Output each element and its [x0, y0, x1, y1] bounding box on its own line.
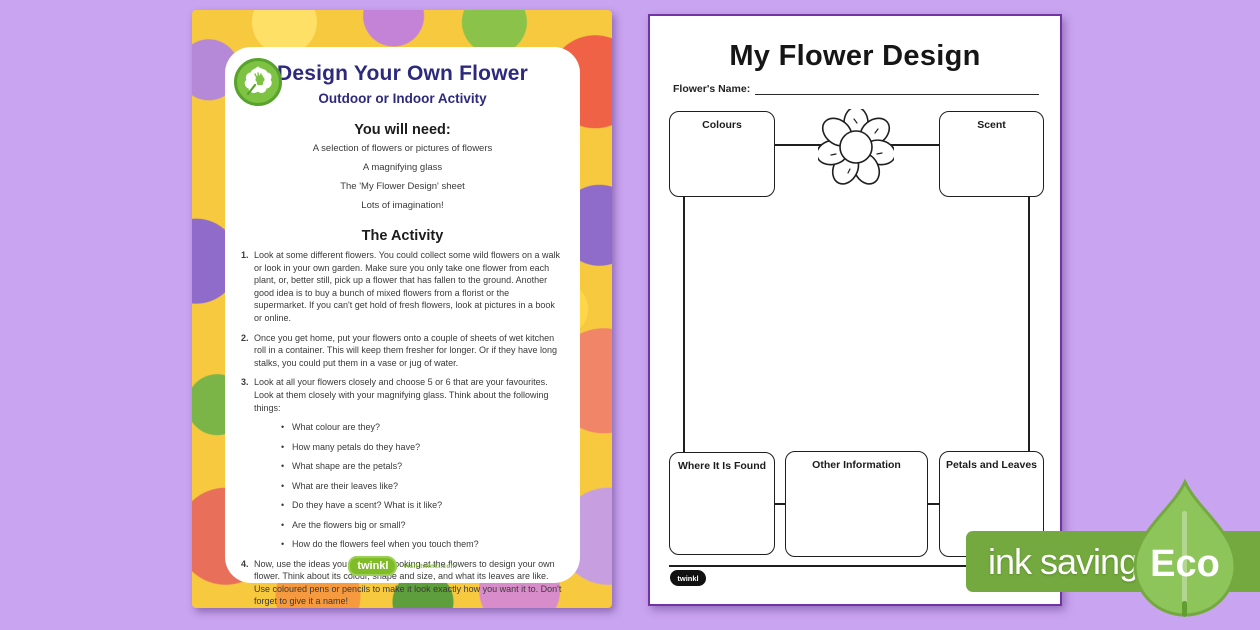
bullet-dot: •: [281, 460, 292, 472]
twinkl-logo: twinkl: [348, 556, 397, 576]
bullet-item: •What colour are they?: [281, 421, 564, 433]
bullet-item: •Are the flowers big or small?: [281, 519, 564, 531]
need-item: The 'My Flower Design' sheet: [225, 179, 580, 195]
bullet-text: How many petals do they have?: [292, 441, 420, 453]
you-will-need-heading: You will need:: [225, 122, 580, 138]
bullet-dot: •: [281, 499, 292, 511]
where-it-is-found-box[interactable]: Where It Is Found: [669, 452, 775, 555]
activity-heading: The Activity: [225, 228, 580, 244]
need-item: A magnifying glass: [225, 160, 580, 176]
twinkl-logo: twinkl: [670, 570, 706, 586]
bullet-item: •How do the flowers feel when you touch …: [281, 538, 564, 550]
step-text: Look at some different flowers. You coul…: [254, 249, 564, 325]
step-number: 1.: [241, 249, 254, 325]
activity-step-1: 1. Look at some different flowers. You c…: [241, 249, 564, 325]
think-about-list: •What colour are they? •How many petals …: [281, 421, 564, 550]
left-page-footer: twinkl visit twinkl.com: [225, 556, 580, 576]
bullet-item: •What shape are the petals?: [281, 460, 564, 472]
bullet-item: •What are their leaves like?: [281, 480, 564, 492]
activity-step-2: 2. Once you get home, put your flowers o…: [241, 332, 564, 370]
worksheet-page: My Flower Design Flower's Name: Colours …: [648, 14, 1062, 606]
bullet-text: How do the flowers feel when you touch t…: [292, 538, 479, 550]
eco-leaf-icon: Eco: [1128, 477, 1242, 619]
ink-saving-label: ink saving: [966, 541, 1138, 583]
colours-box[interactable]: Colours: [669, 111, 775, 197]
flower-name-label: Flower's Name:: [673, 83, 755, 95]
eco-label: Eco: [1150, 543, 1220, 585]
bullet-dot: •: [281, 441, 292, 453]
bullet-text: Do they have a scent? What is it like?: [292, 499, 442, 511]
step-text: Look at all your flowers closely and cho…: [254, 376, 564, 414]
flower-doodle-icon: [818, 109, 894, 185]
instructions-panel: Design Your Own Flower Outdoor or Indoor…: [225, 47, 580, 583]
activity-instructions-page: Design Your Own Flower Outdoor or Indoor…: [192, 10, 612, 608]
bullet-item: •Do they have a scent? What is it like?: [281, 499, 564, 511]
step-text: Once you get home, put your flowers onto…: [254, 332, 564, 370]
bullet-dot: •: [281, 519, 292, 531]
need-item: A selection of flowers or pictures of fl…: [225, 141, 580, 157]
connector-line: [683, 196, 685, 453]
bullet-item: •How many petals do they have?: [281, 441, 564, 453]
activity-step-3: 3. Look at all your flowers closely and …: [241, 376, 564, 414]
connector-line: [1028, 196, 1030, 452]
connector-line: [774, 144, 822, 146]
bullet-text: What colour are they?: [292, 421, 380, 433]
step-number: 3.: [241, 376, 254, 414]
bullet-dot: •: [281, 538, 292, 550]
need-item: Lots of imagination!: [225, 198, 580, 214]
flower-name-row: Flower's Name:: [673, 82, 1039, 95]
bullet-text: What shape are the petals?: [292, 460, 402, 472]
scent-box[interactable]: Scent: [939, 111, 1044, 197]
bullet-text: What are their leaves like?: [292, 480, 398, 492]
resource-preview: { "left_page": { "title": "Design Your O…: [0, 0, 1260, 630]
bullet-text: Are the flowers big or small?: [292, 519, 406, 531]
twinkl-tagline: visit twinkl.com: [403, 563, 456, 570]
flower-name-write-line[interactable]: [755, 82, 1039, 95]
bullet-dot: •: [281, 480, 292, 492]
bullet-dot: •: [281, 421, 292, 433]
activity-steps: 1. Look at some different flowers. You c…: [241, 249, 564, 608]
nature-activity-icon: [234, 58, 282, 106]
leaf-hand-icon: [240, 64, 276, 100]
step-number: 2.: [241, 332, 254, 370]
connector-line: [890, 144, 940, 146]
worksheet-title: My Flower Design: [650, 40, 1060, 73]
other-information-box[interactable]: Other Information: [785, 451, 928, 557]
